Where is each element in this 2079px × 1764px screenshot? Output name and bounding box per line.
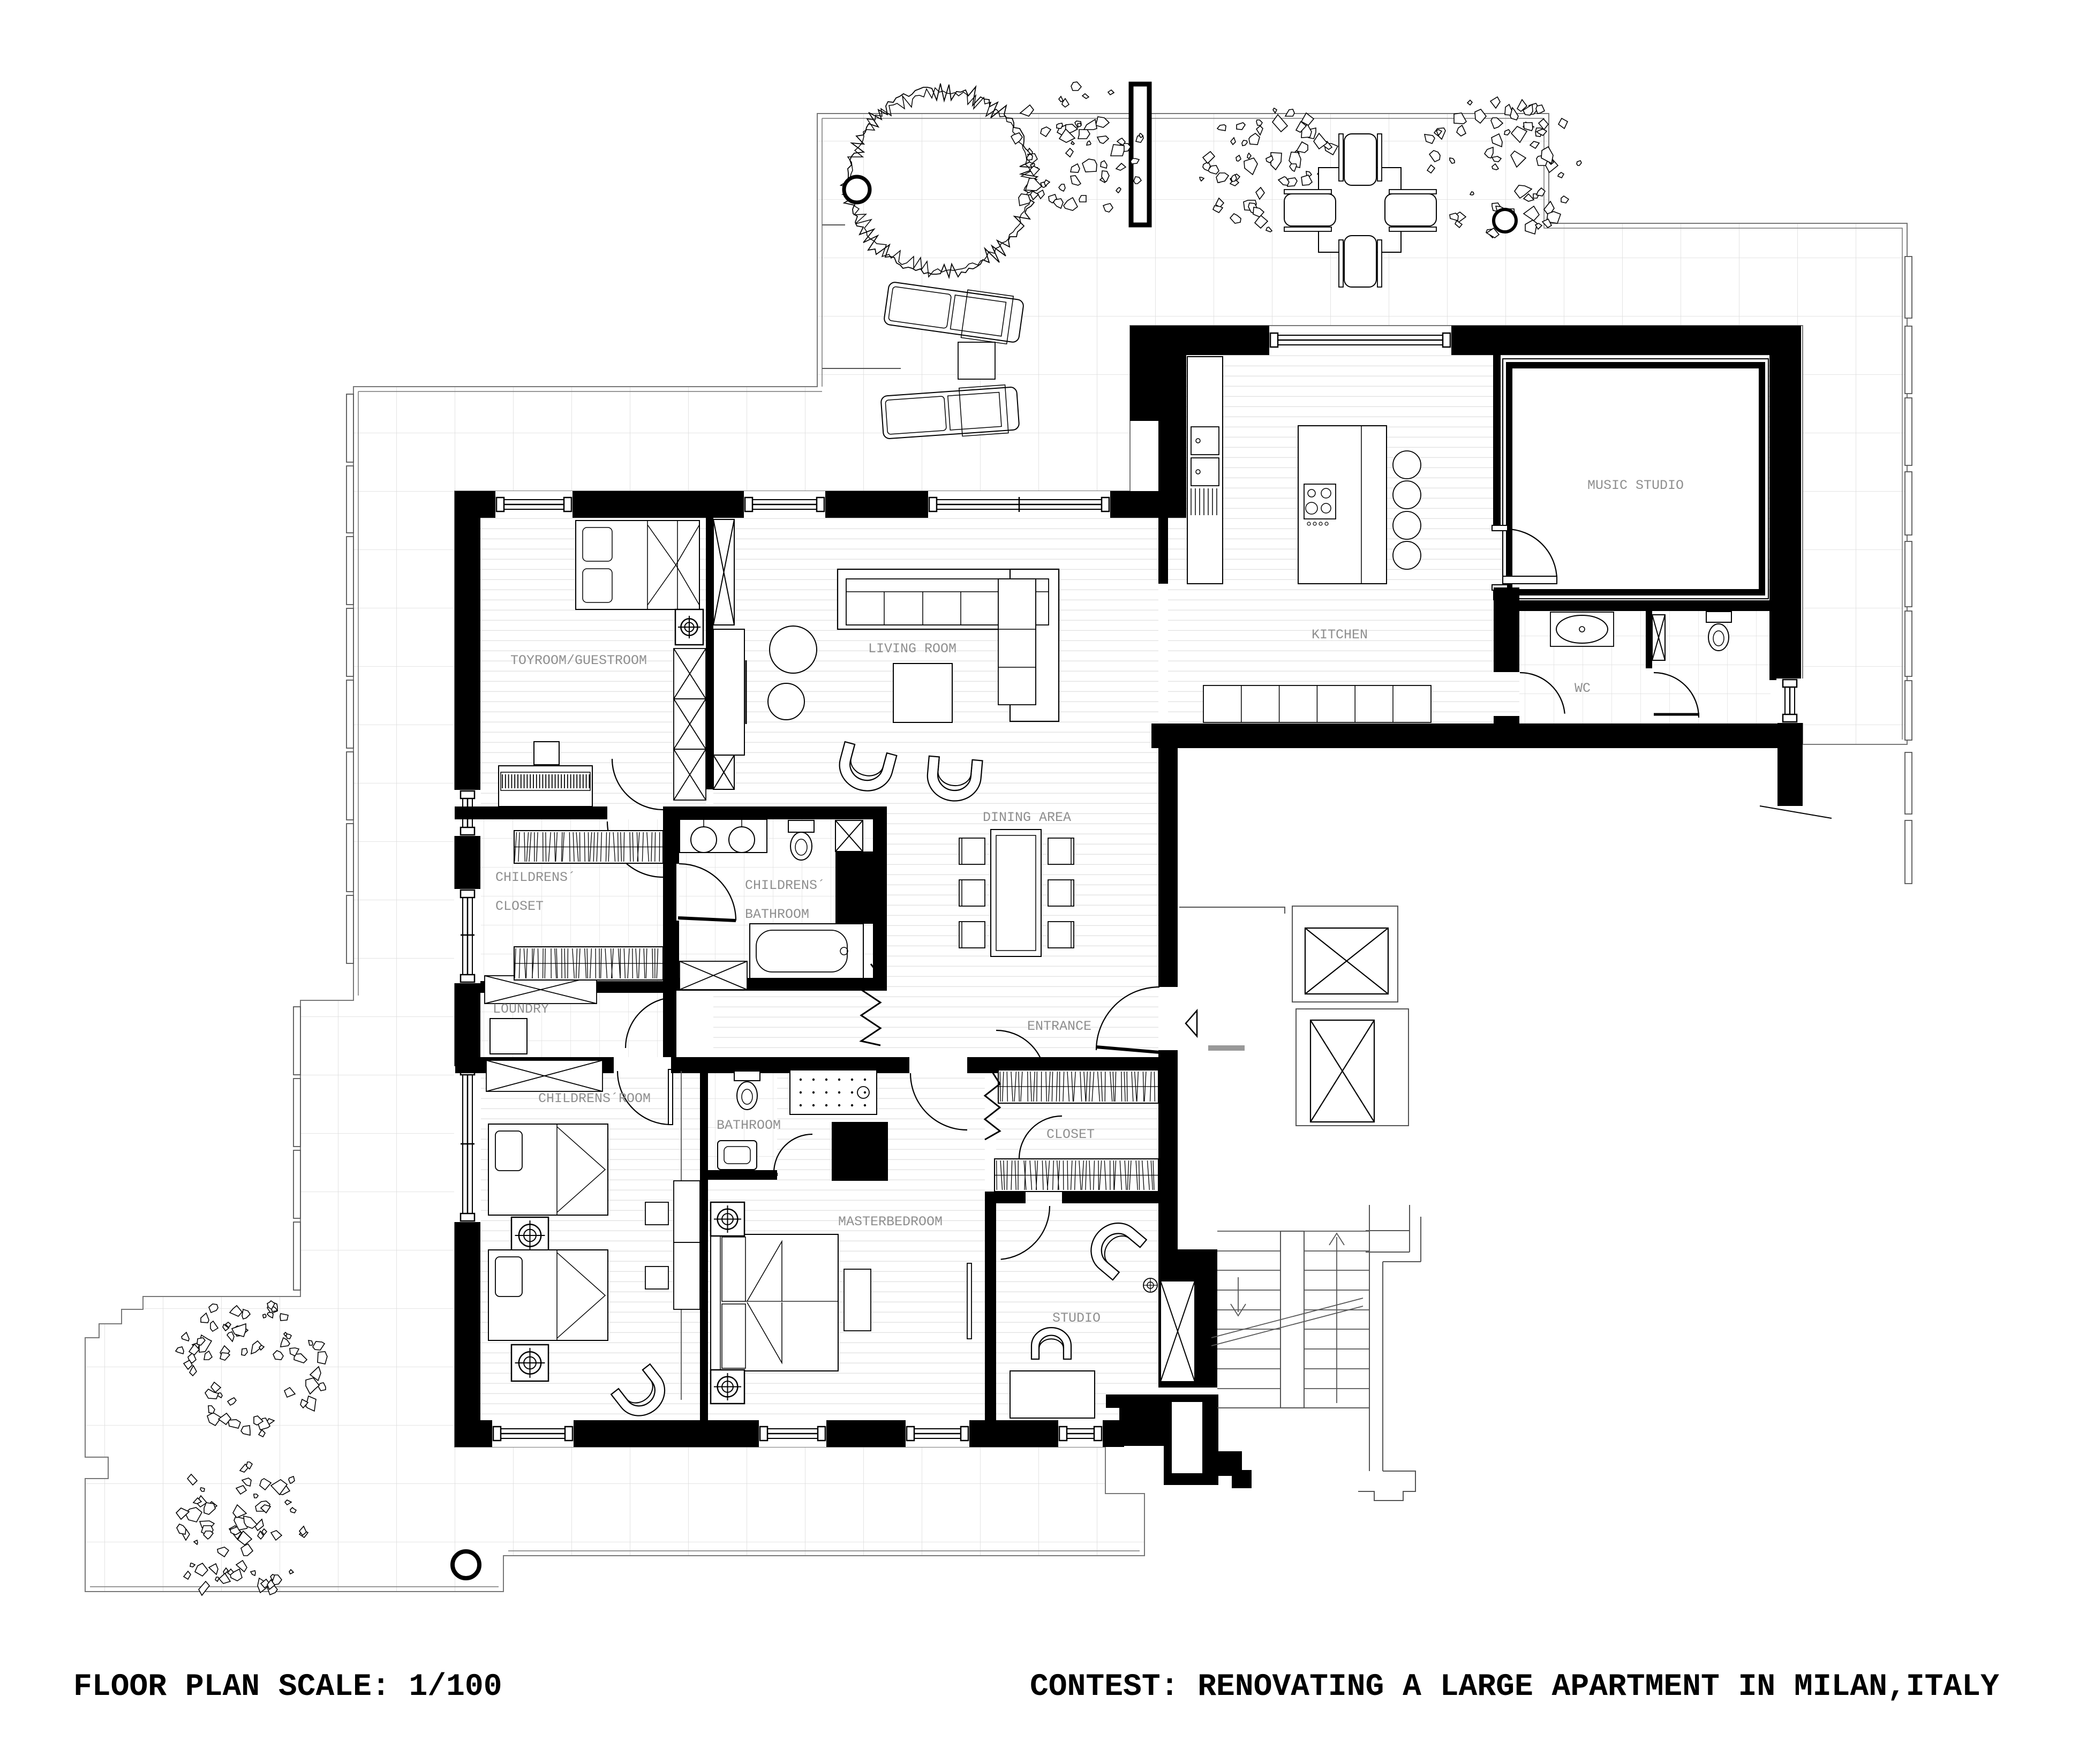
svg-text:CONTEST: RENOVATING A LARGE AP: CONTEST: RENOVATING A LARGE APARTMENT IN… <box>1030 1670 1999 1705</box>
svg-text:FLOOR PLAN SCALE: 1/100: FLOOR PLAN SCALE: 1/100 <box>73 1670 502 1705</box>
svg-text:DINING AREA: DINING AREA <box>983 810 1071 825</box>
svg-text:CLOSET: CLOSET <box>1046 1127 1095 1142</box>
svg-text:BATHROOM: BATHROOM <box>745 907 809 922</box>
svg-text:WC: WC <box>1575 681 1591 696</box>
svg-text:BATHROOM: BATHROOM <box>717 1118 781 1133</box>
svg-text:KITCHEN: KITCHEN <box>1312 627 1368 643</box>
svg-text:CHILDRENS´: CHILDRENS´ <box>745 878 825 893</box>
svg-text:MUSIC STUDIO: MUSIC STUDIO <box>1587 478 1684 493</box>
svg-text:CHILDRENS´: CHILDRENS´ <box>495 870 576 885</box>
svg-text:CHILDRENS´ROOM: CHILDRENS´ROOM <box>538 1091 651 1106</box>
svg-text:LOUNDRY: LOUNDRY <box>493 1001 549 1017</box>
svg-text:MASTERBEDROOM: MASTERBEDROOM <box>838 1214 943 1230</box>
svg-text:ENTRANCE: ENTRANCE <box>1027 1019 1091 1034</box>
svg-text:LIVING ROOM: LIVING ROOM <box>868 641 956 657</box>
svg-text:STUDIO: STUDIO <box>1052 1310 1101 1326</box>
svg-text:CLOSET: CLOSET <box>495 899 544 914</box>
svg-text:TOYROOM/GUESTROOM: TOYROOM/GUESTROOM <box>510 653 647 668</box>
